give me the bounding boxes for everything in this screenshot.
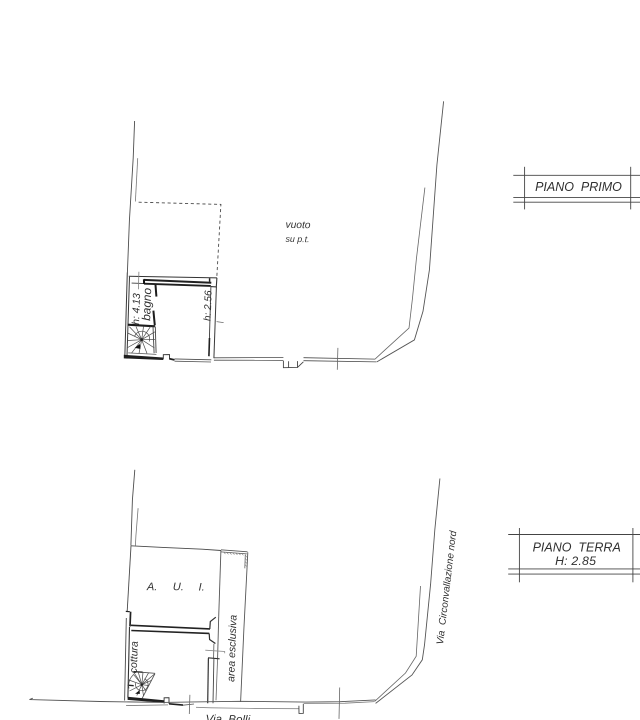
svg-text:cottura: cottura (128, 641, 141, 674)
svg-text:bagno: bagno (139, 287, 154, 321)
svg-text:PIANO TERRA: PIANO TERRA (533, 540, 621, 554)
svg-text:U.: U. (173, 581, 184, 593)
svg-text:area esclusiva: area esclusiva (225, 614, 239, 682)
svg-text:vuoto: vuoto (285, 220, 310, 231)
svg-text:H: 2.85: H: 2.85 (555, 554, 596, 568)
svg-text:PIANO PRIMO: PIANO PRIMO (535, 180, 622, 194)
svg-text:I.: I. (198, 581, 204, 593)
svg-text:Via Bolli: Via Bolli (205, 714, 250, 720)
svg-text:A.: A. (146, 581, 158, 593)
svg-text:h: 2.56: h: 2.56 (203, 290, 215, 321)
svg-text:su p.t.: su p.t. (285, 234, 309, 244)
svg-text:Via Circonvallazione nord: Via Circonvallazione nord (435, 530, 459, 646)
